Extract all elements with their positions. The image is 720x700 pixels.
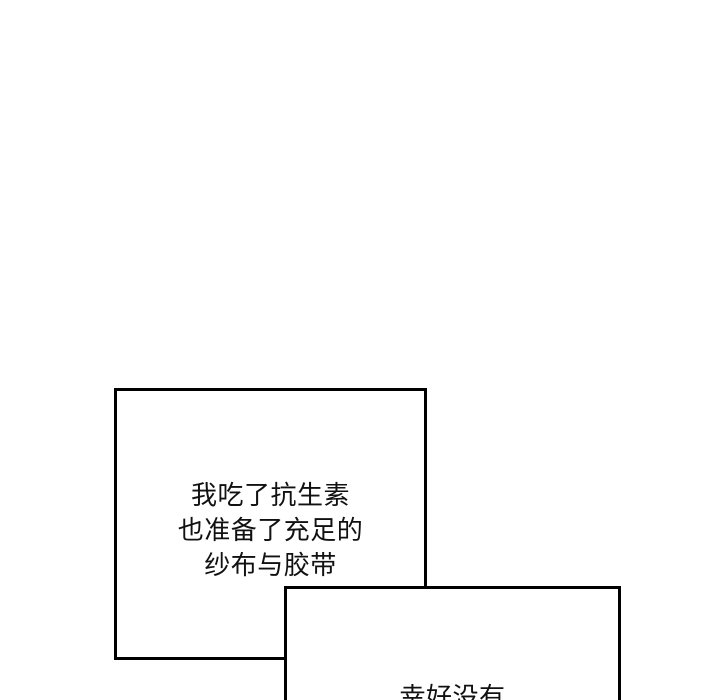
speech-line-3: 纱布与胶带 xyxy=(117,548,424,583)
speech-bubble-second: 幸好没有 xyxy=(284,586,621,700)
speech-line-2: 也准备了充足的 xyxy=(117,513,424,548)
speech-text-first: 我吃了抗生素 也准备了充足的 纱布与胶带 xyxy=(117,478,424,583)
comic-page: 我吃了抗生素 也准备了充足的 纱布与胶带 幸好没有 xyxy=(0,0,720,700)
speech-text-second: 幸好没有 xyxy=(287,680,618,700)
comic-page-body: { "page": { "background_color": "#ffffff… xyxy=(0,0,720,700)
speech-line-1: 我吃了抗生素 xyxy=(117,478,424,513)
speech-line-4: 幸好没有 xyxy=(287,680,618,700)
